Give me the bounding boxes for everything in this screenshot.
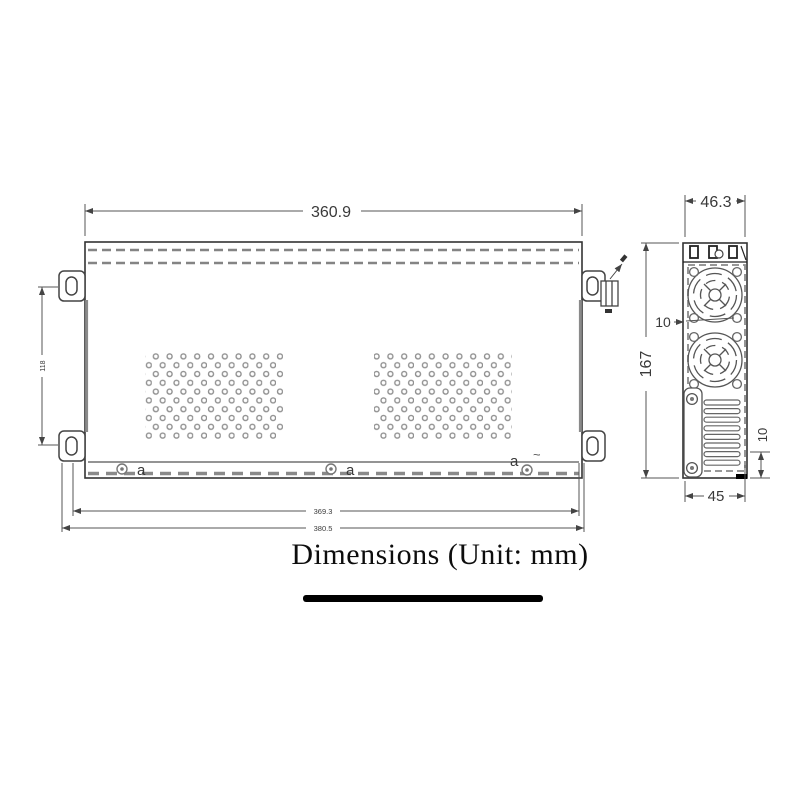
mount-ear-top-left: [59, 271, 85, 301]
front-view: a a a ~: [59, 242, 627, 479]
bottom-gap-dimension: 10: [750, 428, 770, 478]
check-mark: ~: [533, 447, 541, 462]
screw-center: [525, 468, 529, 472]
connector-icon: [690, 246, 698, 258]
mount-ear-bottom-right: [582, 431, 605, 461]
vent-hole-cluster-right: [374, 352, 512, 440]
terminal-block: [601, 254, 627, 313]
side-bracket: [684, 388, 702, 477]
drawing-caption: Dimensions (Unit: mm): [240, 538, 640, 572]
front-outer-width-label: 380.5: [314, 524, 333, 533]
side-bottom-width-label: 45: [708, 488, 725, 505]
tiny-note-mark: [620, 254, 628, 262]
mount-pitch-label: 118: [40, 360, 47, 371]
side-depth-label: 46.3: [700, 194, 731, 211]
side-height-dimension: 167: [638, 243, 679, 478]
dimension-drawing: a a a ~ 360.9 118: [0, 0, 800, 800]
mount-slot-icon: [587, 437, 598, 455]
side-view: [683, 243, 747, 478]
caption-underline-bar: [303, 595, 543, 602]
screw-center: [120, 467, 124, 471]
mount-slot-icon: [587, 277, 598, 295]
vent-hole-cluster-left: [145, 352, 283, 440]
bottom-gap-label: 10: [755, 428, 770, 442]
front-inner-width-label: 369.3: [314, 507, 333, 516]
side-height-label: 167: [638, 351, 655, 378]
tiny-note-mark: [605, 309, 612, 313]
mount-ear-bottom-left: [59, 431, 85, 461]
leader-arrow: [610, 264, 622, 279]
screw-label: a: [137, 462, 146, 479]
mount-pitch-dimension: 118: [37, 287, 58, 445]
mount-slot-icon: [66, 437, 77, 455]
connector-icon: [729, 246, 737, 258]
mount-slot-icon: [66, 277, 77, 295]
screw-label: a: [510, 453, 519, 470]
screw-center: [329, 467, 333, 471]
front-width-dimension: 360.9: [85, 203, 582, 236]
fan-gap-label: 10: [655, 314, 671, 330]
technical-drawing-svg: a a a ~ 360.9 118: [0, 0, 800, 800]
front-width-label: 360.9: [311, 204, 351, 221]
connector-knob-icon: [715, 250, 723, 258]
screw-label: a: [346, 462, 355, 479]
side-depth-dimension: 46.3: [685, 194, 745, 237]
